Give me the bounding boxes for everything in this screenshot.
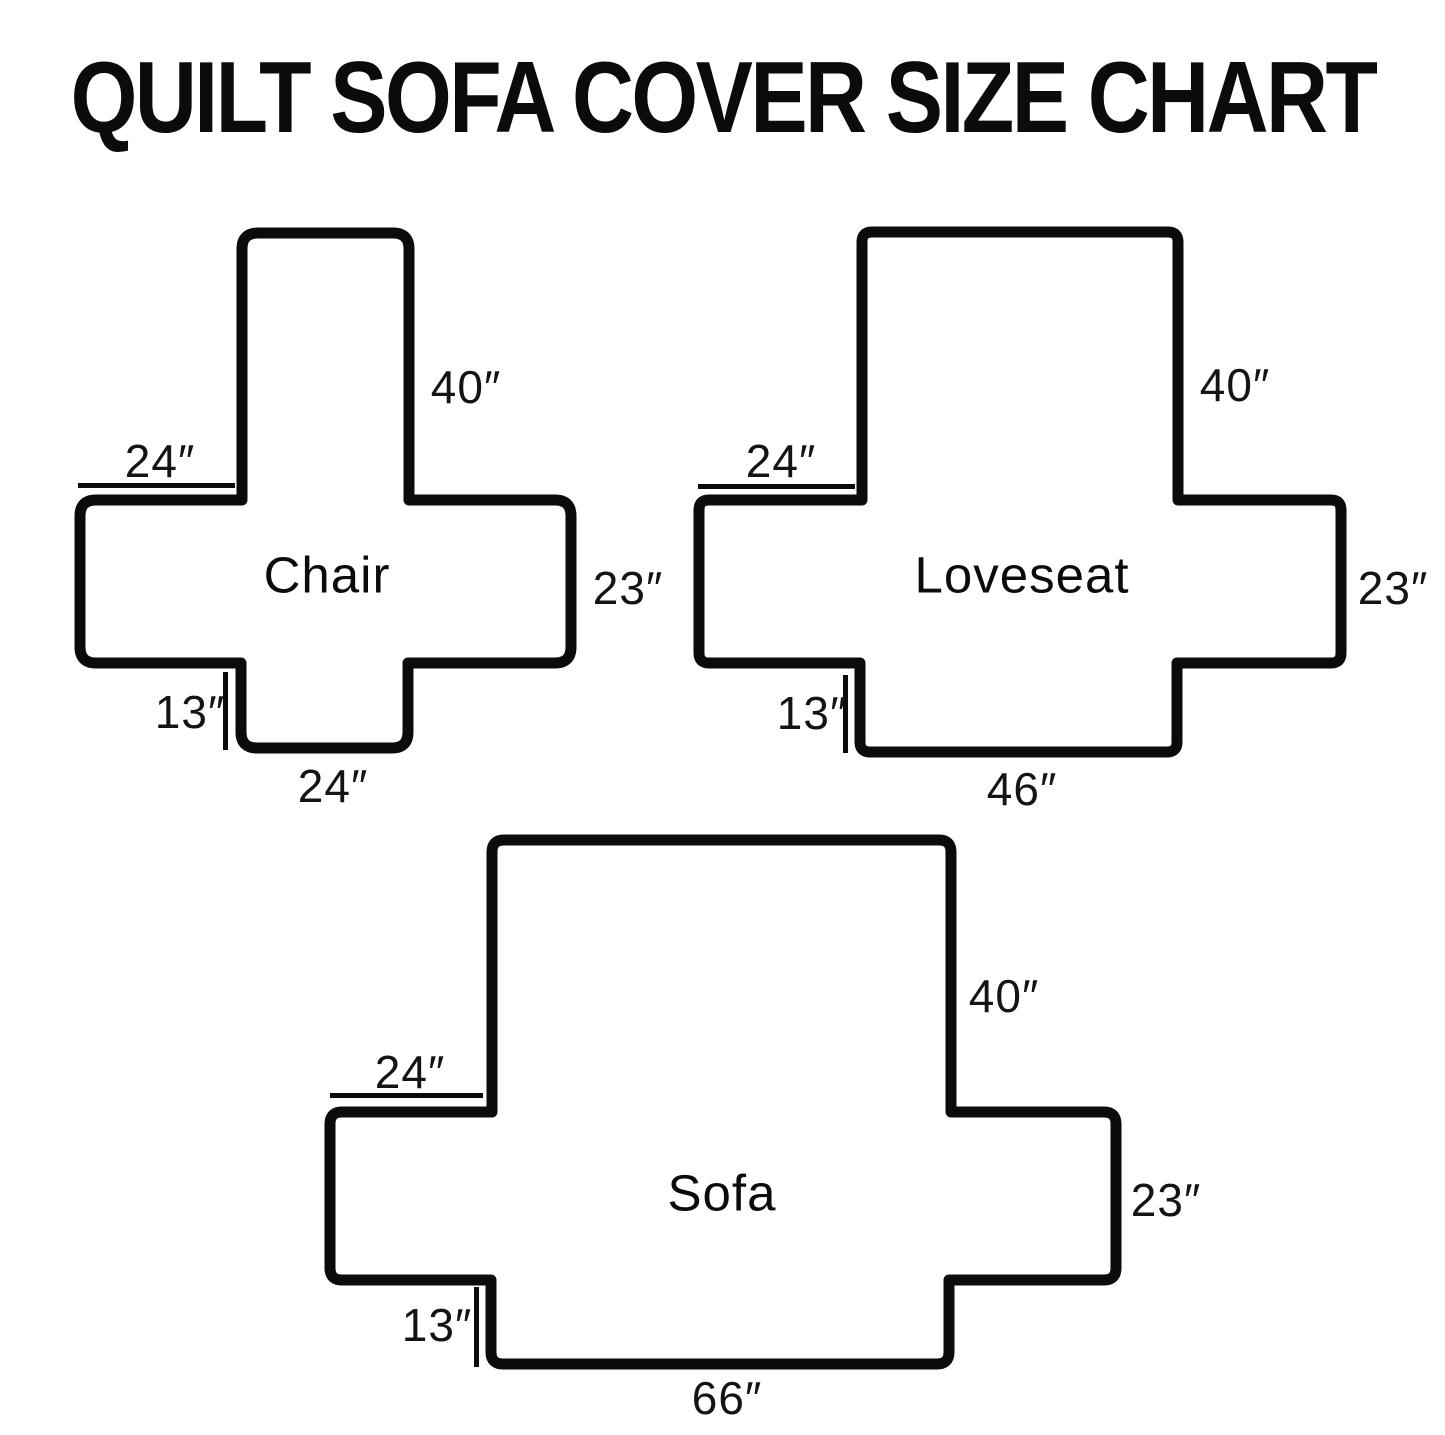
loveseat-name-label: Loveseat [915,550,1130,601]
chair-seat-width-label: 24″ [298,763,368,809]
chair-arm-side-label: 23″ [593,565,663,611]
loveseat-outline [699,232,1341,752]
loveseat-arm-top-label: 24″ [746,438,816,484]
size-chart: QUILT SOFA COVER SIZE CHART 40″ 24″ Chai… [0,0,1445,1435]
sofa-back-height-label: 40″ [969,973,1039,1019]
loveseat-arm-side-label: 23″ [1358,565,1428,611]
loveseat-back-height-label: 40″ [1200,362,1270,408]
sofa-skirt-dim-line [474,1287,479,1367]
sofa-outline [330,840,1116,1364]
loveseat-skirt-drop-label: 13″ [777,690,847,736]
chair-name-label: Chair [264,550,391,601]
sofa-name-label: Sofa [668,1168,777,1219]
chair-outline [80,233,571,748]
chair-skirt-drop-label: 13″ [155,689,225,735]
loveseat-seat-width-label: 46″ [987,766,1057,812]
sofa-skirt-drop-label: 13″ [402,1302,472,1348]
sofa-arm-side-label: 23″ [1131,1177,1201,1223]
chair-arm-top-label: 24″ [125,438,195,484]
chair-back-height-label: 40″ [431,364,501,410]
sofa-arm-top-label: 24″ [375,1049,445,1095]
sofa-seat-width-label: 66″ [692,1375,762,1421]
